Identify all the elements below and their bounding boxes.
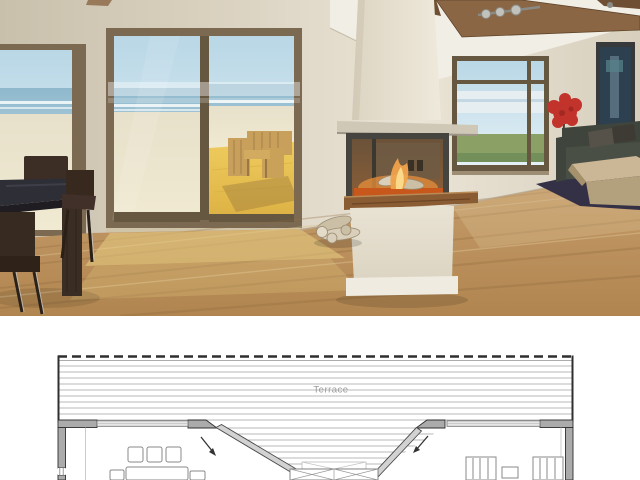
ceiling-spotlight (607, 2, 613, 8)
plan-dining-furniture (110, 447, 205, 480)
sliding-glass-door (106, 28, 302, 236)
chimney-breast (352, 0, 441, 120)
pin-image: Terrace (0, 0, 640, 480)
plan-chair (166, 447, 181, 462)
entry-arrow-right (413, 436, 428, 453)
right-landscape-window (452, 56, 549, 175)
framed-art (596, 42, 635, 132)
plan-armchair (466, 457, 496, 480)
entry-arrow-left (201, 437, 216, 456)
fireplace-base (350, 206, 454, 282)
interior-render-photo (0, 0, 640, 316)
floor-plan: Terrace (0, 350, 640, 480)
plan-chair (110, 470, 124, 480)
sofa-pillow (612, 124, 636, 143)
plan-chair (128, 447, 143, 462)
plan-dining-table (126, 467, 188, 480)
dining-chair (24, 156, 68, 182)
plan-armchair (533, 457, 563, 480)
plan-chair (190, 471, 205, 480)
terrace-label: Terrace (313, 385, 348, 396)
plan-chair (147, 447, 162, 462)
terrace-deck: Terrace (58, 355, 573, 422)
plan-fireplace (290, 462, 378, 480)
plan-living-furniture (466, 457, 563, 480)
plan-side-table (502, 467, 518, 478)
